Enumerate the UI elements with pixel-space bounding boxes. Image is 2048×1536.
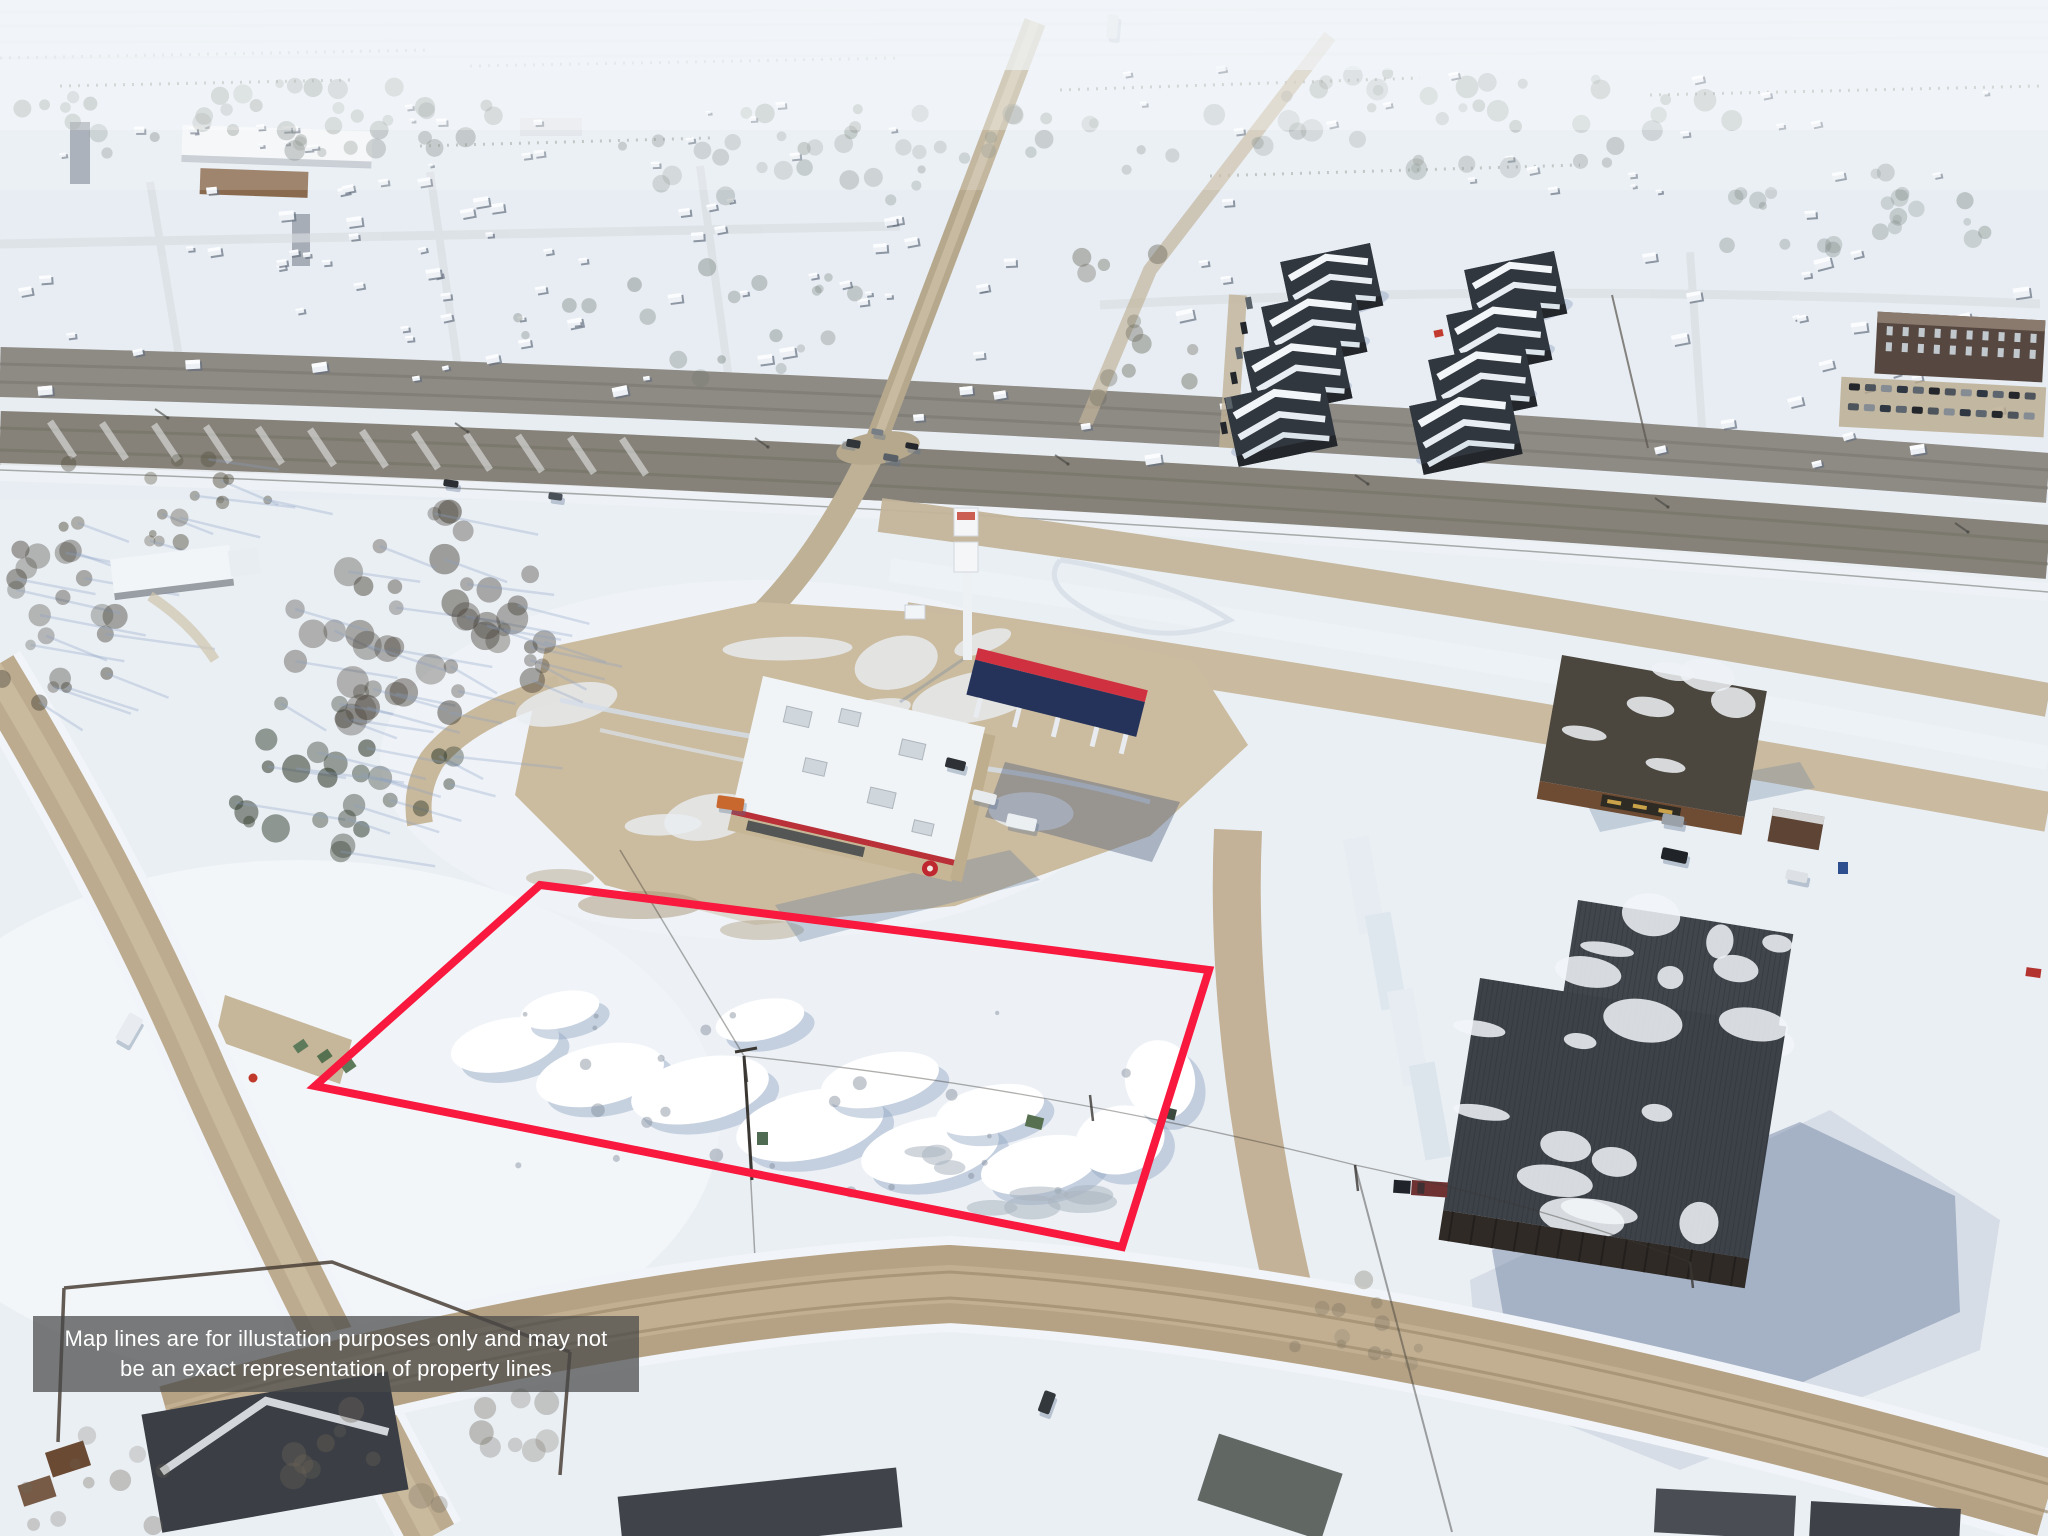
stop-sign bbox=[249, 1074, 258, 1083]
disclaimer-line-2: be an exact representation of property l… bbox=[33, 1354, 639, 1384]
directional-sign bbox=[905, 605, 925, 619]
disclaimer-line-1: Map lines are for illustation purposes o… bbox=[33, 1324, 639, 1354]
aerial-photo: Map lines are for illustation purposes o… bbox=[0, 0, 2048, 1536]
roof-edge bbox=[1654, 1488, 1796, 1536]
blue-bin bbox=[1838, 862, 1848, 874]
commercial-building-2 bbox=[1420, 962, 1791, 1289]
aerial-scene bbox=[0, 0, 2048, 1536]
map-disclaimer: Map lines are for illustation purposes o… bbox=[33, 1316, 639, 1392]
atmospheric-haze bbox=[0, 0, 2048, 190]
